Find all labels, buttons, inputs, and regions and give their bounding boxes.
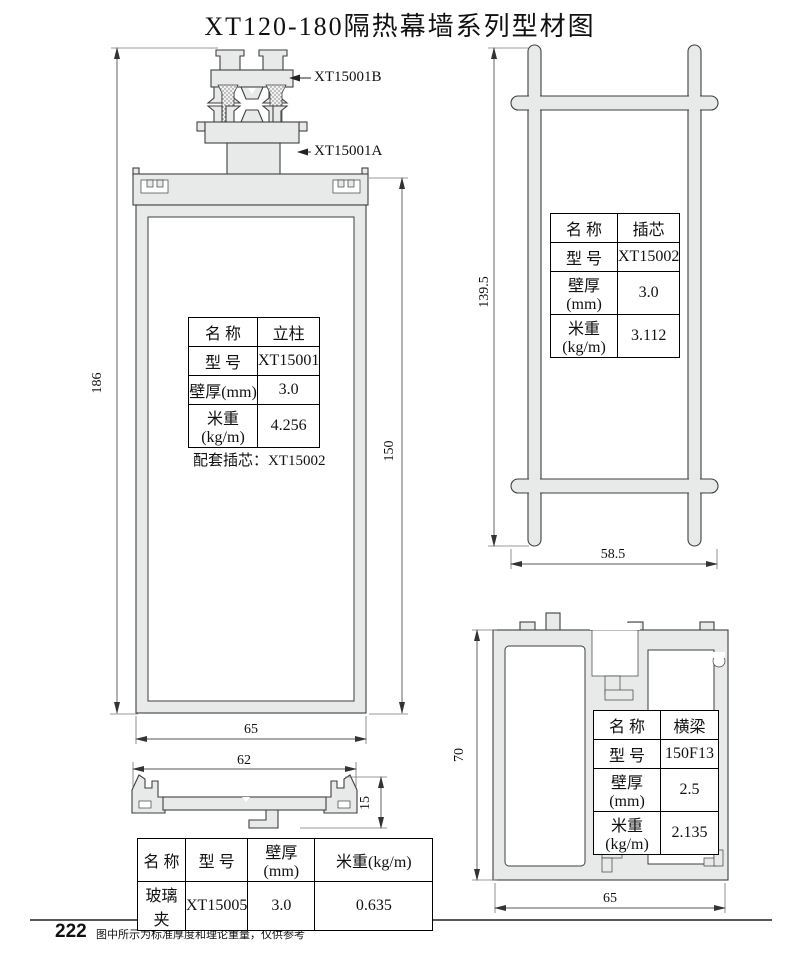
- spec-label: 壁厚(mm): [551, 272, 618, 315]
- page-number: 222: [55, 921, 87, 943]
- table-row: 型 号XT15001: [189, 347, 320, 376]
- spec-value: XT15005: [186, 882, 248, 931]
- spec-value: 横梁: [661, 711, 719, 740]
- spec-value: 3.0: [258, 376, 320, 405]
- spec-value: 3.0: [248, 882, 315, 931]
- table-row: 玻璃夹 XT15005 3.0 0.635: [138, 882, 433, 931]
- dim-label-58-5: 58.5: [588, 547, 638, 563]
- table-row: 壁厚(mm)3.0: [551, 272, 680, 315]
- spec-value: XT15001: [258, 347, 320, 376]
- spec-value: 插芯: [618, 214, 680, 243]
- dim-label-65-beam: 65: [595, 891, 625, 907]
- glass-clamp-spec-table: 名 称 型 号 壁厚(mm) 米重(kg/m) 玻璃夹 XT15005 3.0 …: [137, 838, 433, 931]
- callout-xt15001b: XT15001B: [314, 69, 382, 86]
- spec-value: 玻璃夹: [138, 882, 186, 931]
- table-row: 型 号150F13: [594, 740, 719, 769]
- column-header: 壁厚(mm): [248, 839, 315, 882]
- dim-label-150: 150: [382, 431, 398, 471]
- insert-core-spec-table: 名 称插芯 型 号XT15002 壁厚(mm)3.0 米重(kg/m)3.112: [550, 213, 680, 358]
- spec-value: 3.0: [618, 272, 680, 315]
- dim-label-65-mullion: 65: [236, 722, 266, 738]
- column-header: 名 称: [138, 839, 186, 882]
- dim-label-186: 186: [90, 361, 106, 405]
- column-header: 型 号: [186, 839, 248, 882]
- spec-label: 壁厚(mm): [189, 376, 258, 405]
- dim-label-139-5: 139.5: [477, 265, 493, 319]
- table-row: 壁厚(mm)3.0: [189, 376, 320, 405]
- table-row: 壁厚(mm)2.5: [594, 769, 719, 812]
- spec-value: 2.5: [661, 769, 719, 812]
- spec-label: 型 号: [189, 347, 258, 376]
- beam-spec-table: 名 称横梁 型 号150F13 壁厚(mm)2.5 米重(kg/m)2.135: [593, 710, 719, 855]
- spec-value: 0.635: [315, 882, 433, 931]
- dim-label-15: 15: [358, 788, 374, 818]
- spec-label: 名 称: [594, 711, 661, 740]
- spec-label: 名 称: [551, 214, 618, 243]
- table-row: 型 号XT15002: [551, 243, 680, 272]
- spec-value: 150F13: [661, 740, 719, 769]
- spec-value: 立柱: [258, 318, 320, 347]
- spec-label: 型 号: [551, 243, 618, 272]
- column-header: 米重(kg/m): [315, 839, 433, 882]
- dim-label-70: 70: [452, 737, 468, 773]
- spec-label: 米重(kg/m): [551, 315, 618, 358]
- spec-label: 米重(kg/m): [189, 405, 258, 448]
- table-row: 名 称横梁: [594, 711, 719, 740]
- spec-label: 壁厚(mm): [594, 769, 661, 812]
- callout-xt15001a: XT15001A: [314, 143, 382, 160]
- table-row: 名 称插芯: [551, 214, 680, 243]
- glass-clamp-profile-drawing: [132, 762, 387, 828]
- table-row: 名 称立柱: [189, 318, 320, 347]
- table-row: 米重(kg/m)4.256: [189, 405, 320, 448]
- spec-label: 米重(kg/m): [594, 812, 661, 855]
- table-row: 米重(kg/m)2.135: [594, 812, 719, 855]
- spec-value: 3.112: [618, 315, 680, 358]
- catalog-page: { "page": { "title": "XT120-180隔热幕墙系列型材图…: [0, 0, 800, 975]
- mullion-note: 配套插芯：XT15002: [193, 449, 326, 470]
- dim-label-62: 62: [229, 753, 259, 769]
- spec-label: 名 称: [189, 318, 258, 347]
- table-header-row: 名 称 型 号 壁厚(mm) 米重(kg/m): [138, 839, 433, 882]
- spec-value: XT15002: [618, 243, 680, 272]
- spec-value: 2.135: [661, 812, 719, 855]
- page-title: XT120-180隔热幕墙系列型材图: [0, 6, 800, 43]
- table-row: 米重(kg/m)3.112: [551, 315, 680, 358]
- spec-value: 4.256: [258, 405, 320, 448]
- mullion-spec-table: 名 称立柱 型 号XT15001 壁厚(mm)3.0 米重(kg/m)4.256: [188, 317, 320, 448]
- spec-label: 型 号: [594, 740, 661, 769]
